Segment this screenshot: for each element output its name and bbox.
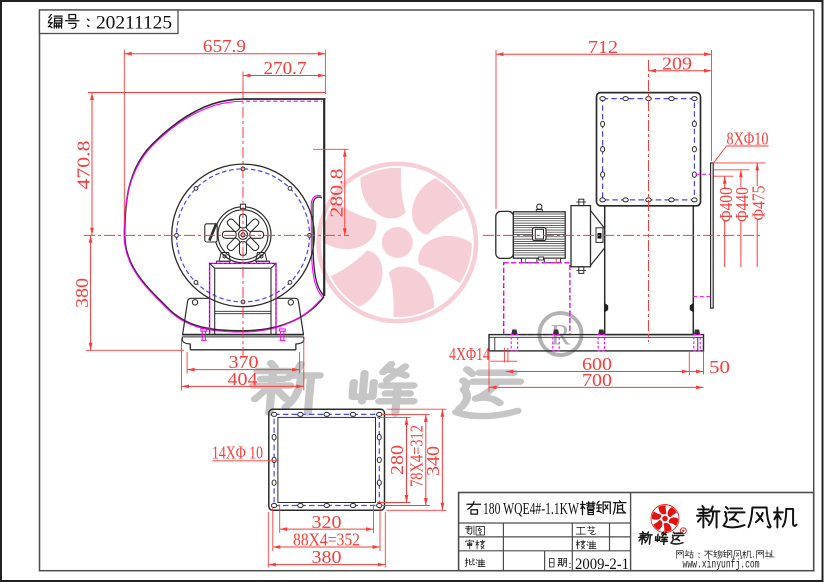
svg-text:180 WQE4#-1.1KW: 180 WQE4#-1.1KW bbox=[483, 499, 579, 518]
svg-text:270.7: 270.7 bbox=[264, 58, 307, 78]
svg-text:www.xinyunfj.com: www.xinyunfj.com bbox=[683, 558, 760, 572]
svg-text:Φ400: Φ400 bbox=[716, 187, 736, 222]
svg-text:14XΦ 10: 14XΦ 10 bbox=[212, 443, 263, 463]
svg-text:280.8: 280.8 bbox=[327, 169, 347, 218]
svg-text:209: 209 bbox=[662, 53, 692, 73]
svg-text:340: 340 bbox=[423, 446, 443, 476]
svg-text:280: 280 bbox=[387, 445, 407, 475]
svg-text:50: 50 bbox=[709, 357, 730, 377]
svg-text:470.8: 470.8 bbox=[74, 141, 94, 190]
svg-text:2009-2-1: 2009-2-1 bbox=[575, 556, 629, 573]
svg-text:657.9: 657.9 bbox=[203, 36, 246, 56]
svg-text:404: 404 bbox=[228, 369, 258, 389]
svg-text:712: 712 bbox=[588, 37, 618, 57]
svg-text:20211125: 20211125 bbox=[96, 13, 172, 34]
svg-text:8XΦ10: 8XΦ10 bbox=[727, 128, 769, 148]
svg-text:380: 380 bbox=[72, 278, 92, 308]
svg-text:4XΦ14: 4XΦ14 bbox=[449, 344, 490, 364]
svg-text:700: 700 bbox=[582, 370, 612, 390]
svg-text::: : bbox=[569, 559, 572, 571]
svg-text:380: 380 bbox=[312, 547, 342, 567]
